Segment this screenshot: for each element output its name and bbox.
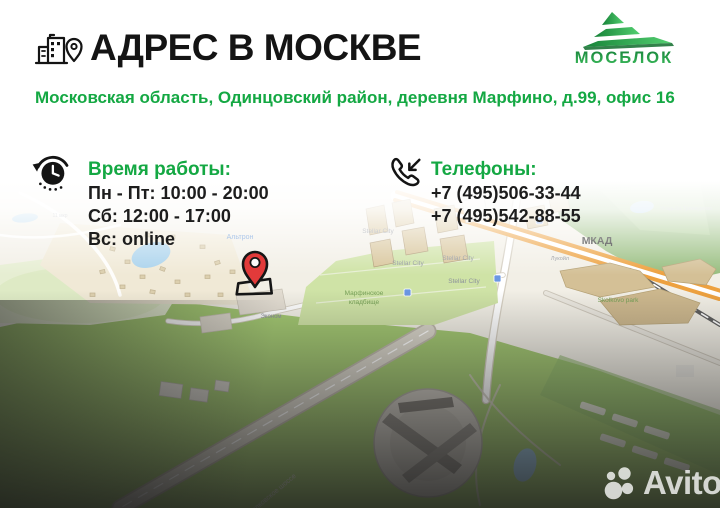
avito-watermark-text: Avito bbox=[643, 464, 720, 502]
hours-lines: Пн - Пт: 10:00 - 20:00 Сб: 12:00 - 17:00… bbox=[88, 182, 269, 251]
page-title: АДРЕС В МОСКВЕ bbox=[90, 26, 421, 70]
phone-number-1: +7 (495)506-33-44 bbox=[431, 182, 581, 205]
hours-line-sunday: Вс: online bbox=[88, 228, 269, 251]
map-label-mkad: МКАД bbox=[582, 235, 613, 247]
map-circular-structure bbox=[374, 389, 482, 497]
map-label-skolkovo-park: Skolkovo park bbox=[598, 297, 640, 304]
avito-logo-icon bbox=[602, 466, 638, 500]
building-pin-icon bbox=[34, 30, 88, 68]
logo-text: МОСБЛОК bbox=[575, 49, 673, 67]
map-label-cemetery-2: кладбище bbox=[349, 298, 380, 306]
map-label-usadba: Усадьба Троекурово bbox=[660, 206, 712, 212]
mosblok-logo: МОСБЛОК bbox=[566, 6, 694, 70]
working-hours-icon bbox=[30, 153, 74, 199]
phone-numbers: +7 (495)506-33-44 +7 (495)542-88-55 bbox=[431, 182, 581, 228]
phones-title: Телефоны: bbox=[431, 159, 537, 181]
avito-watermark: Avito bbox=[602, 464, 720, 502]
hours-line-weekdays: Пн - Пт: 10:00 - 20:00 bbox=[88, 182, 269, 205]
hours-line-saturday: Сб: 12:00 - 17:00 bbox=[88, 205, 269, 228]
map-label-lukoil: Лукойл bbox=[551, 255, 569, 262]
map-label-cemetery-1: Марфинское bbox=[345, 290, 384, 297]
hours-title: Время работы: bbox=[88, 159, 231, 181]
logo-pyramid bbox=[583, 12, 674, 50]
map-label-stellar-1: Stellar City bbox=[362, 228, 394, 235]
map-label-stellar-2: Stellar City bbox=[392, 260, 424, 267]
address-text: Московская область, Одинцовский район, д… bbox=[35, 88, 705, 108]
address-card: Альтрон11 мкрStellar CityStellar CitySte… bbox=[0, 0, 720, 508]
map-label-econom: Эконом bbox=[260, 314, 281, 320]
phone-number-2: +7 (495)542-88-55 bbox=[431, 205, 581, 228]
map-label-stellar-3: Stellar City bbox=[442, 255, 474, 262]
map-label-stellar-4: Stellar City bbox=[448, 278, 480, 285]
phone-icon bbox=[386, 154, 426, 194]
map-label-mkr: 11 мкр bbox=[53, 213, 68, 219]
